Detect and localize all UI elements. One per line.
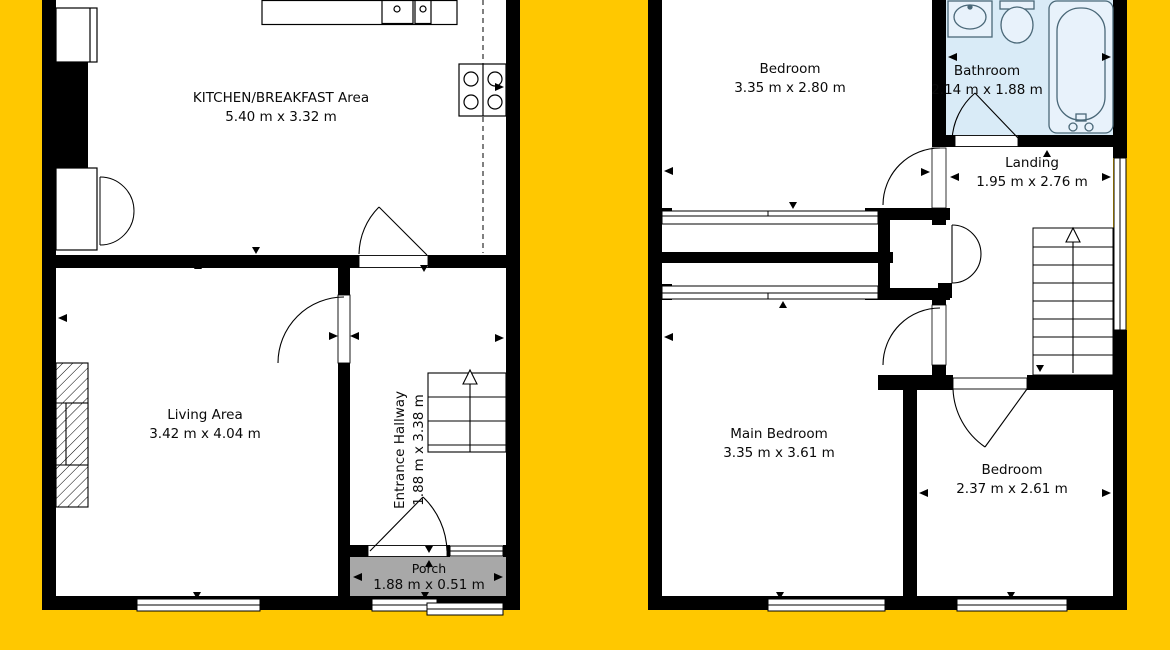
room-label-porch: Porch 1.88 m x 0.51 m (373, 561, 485, 594)
room-dims: 2.14 m x 1.88 m (931, 81, 1043, 100)
main-bedroom-window (768, 599, 885, 611)
first-floor-plan (648, 0, 1127, 611)
stairs-icon-first-floor (1033, 228, 1113, 375)
room-name: KITCHEN/BREAKFAST Area (193, 89, 369, 108)
room-name: Bedroom (734, 60, 846, 79)
room-label-bedroom1: Bedroom 3.35 m x 2.80 m (734, 60, 846, 98)
room-name: Entrance Hallway (391, 391, 410, 509)
room-label-bathroom: Bathroom 2.14 m x 1.88 m (931, 62, 1043, 100)
kitchen-unit (56, 8, 97, 62)
hall-window (450, 546, 503, 556)
porch-window-right (427, 603, 503, 615)
room-name: Bathroom (931, 62, 1043, 81)
room-dims: 3.42 m x 4.04 m (149, 425, 261, 444)
bedroom2-window (957, 599, 1067, 611)
room-name: Main Bedroom (723, 425, 835, 444)
landing-window (1114, 158, 1126, 330)
room-name: Living Area (149, 406, 261, 425)
fireplace-icon (56, 363, 88, 507)
room-dims: 3.35 m x 3.61 m (723, 444, 835, 463)
wardrobe-bedroom1 (662, 211, 878, 224)
room-dims: 2.37 m x 2.61 m (956, 480, 1068, 499)
alcove-cupboard (56, 168, 97, 250)
room-label-main-bedroom: Main Bedroom 3.35 m x 3.61 m (723, 425, 835, 463)
sink-icon (382, 1, 431, 24)
chimney-breast (56, 62, 88, 168)
bathtub-icon (1049, 1, 1113, 133)
stove-icon (459, 64, 506, 116)
floorplan-canvas: KITCHEN/BREAKFAST Area 5.40 m x 3.32 m L… (0, 0, 1170, 650)
living-window (137, 599, 260, 611)
room-label-landing: Landing 1.95 m x 2.76 m (976, 154, 1088, 192)
room-name: Porch (373, 561, 485, 577)
room-name: Landing (976, 154, 1088, 173)
room-dims: 3.35 m x 2.80 m (734, 79, 846, 98)
room-dims: 5.40 m x 3.32 m (193, 108, 369, 127)
toilet-icon (1000, 1, 1034, 43)
room-dims: 1.88 m x 3.38 m (410, 391, 429, 509)
basin-icon (948, 1, 992, 37)
room-label-living: Living Area 3.42 m x 4.04 m (149, 406, 261, 444)
room-label-bedroom2: Bedroom 2.37 m x 2.61 m (956, 461, 1068, 499)
room-dims: 1.95 m x 2.76 m (976, 173, 1088, 192)
room-name: Bedroom (956, 461, 1068, 480)
room-label-kitchen: KITCHEN/BREAKFAST Area 5.40 m x 3.32 m (193, 89, 369, 127)
wardrobe-main-bedroom (662, 286, 878, 299)
room-dims: 1.88 m x 0.51 m (373, 576, 485, 593)
room-label-hallway: Entrance Hallway 1.88 m x 3.38 m (391, 391, 429, 509)
stairs-icon (428, 370, 506, 452)
